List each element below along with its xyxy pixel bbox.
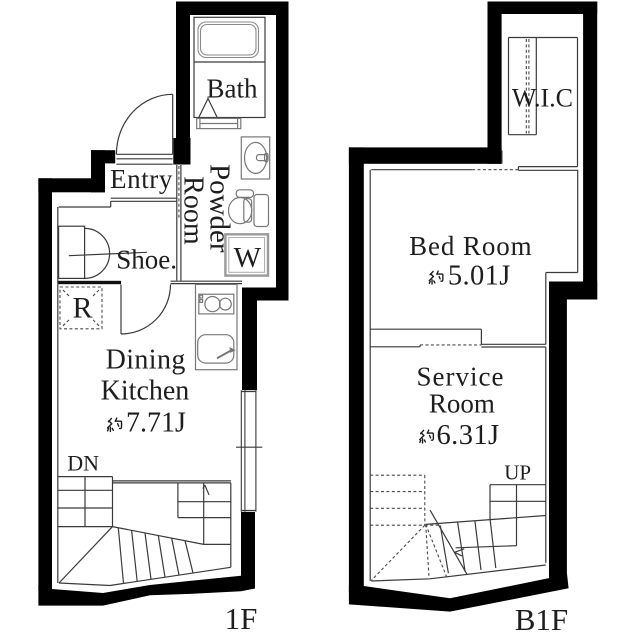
svg-text:6.31J: 6.31J	[437, 420, 500, 451]
svg-text:UP: UP	[504, 460, 531, 484]
svg-text:Dining: Dining	[106, 345, 186, 376]
svg-text:Room: Room	[429, 389, 495, 419]
svg-text:1F: 1F	[225, 601, 258, 636]
svg-text:W.I.C: W.I.C	[512, 83, 573, 112]
svg-text:7.71J: 7.71J	[126, 408, 186, 439]
svg-text:Room: Room	[178, 176, 209, 245]
svg-text:Bed Room: Bed Room	[409, 231, 532, 261]
svg-text:Entry: Entry	[110, 164, 173, 194]
svg-text:Bath: Bath	[207, 74, 258, 104]
svg-text:Service: Service	[417, 362, 505, 392]
svg-text:Shoe.: Shoe.	[116, 245, 177, 275]
svg-text:W: W	[234, 242, 262, 274]
svg-text:B1F: B1F	[515, 602, 568, 637]
svg-text:R: R	[72, 292, 92, 325]
svg-text:Kitchen: Kitchen	[101, 376, 190, 407]
svg-text:5.01J: 5.01J	[448, 261, 511, 292]
svg-text:DN: DN	[67, 450, 99, 475]
